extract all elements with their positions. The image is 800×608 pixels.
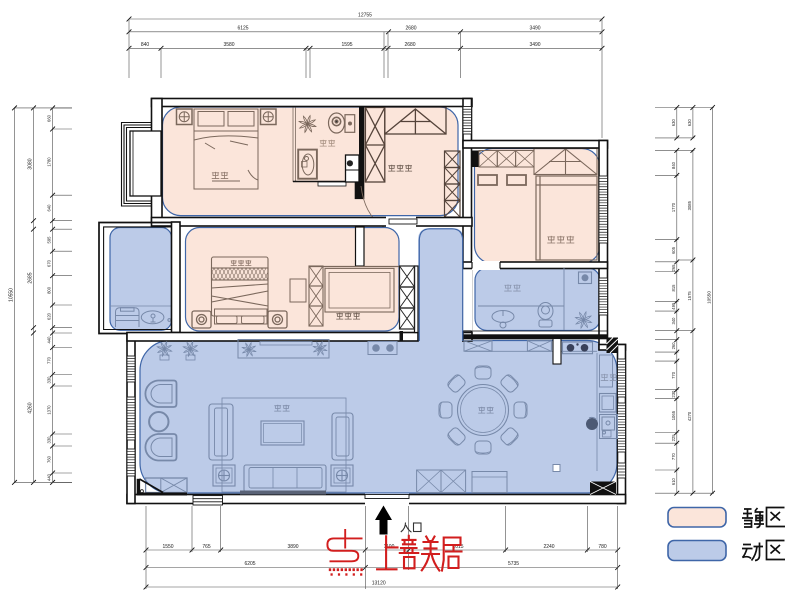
svg-text:5735: 5735 xyxy=(508,561,519,567)
svg-text:2680: 2680 xyxy=(405,25,416,31)
svg-text:640: 640 xyxy=(47,204,52,212)
svg-text:3080: 3080 xyxy=(28,158,34,169)
svg-text:495: 495 xyxy=(671,302,676,310)
svg-text:3490: 3490 xyxy=(529,25,540,31)
svg-text:330: 330 xyxy=(47,436,52,444)
svg-text:330: 330 xyxy=(47,376,52,384)
svg-text:760: 760 xyxy=(47,455,52,463)
svg-text:260: 260 xyxy=(671,342,676,350)
svg-text:770: 770 xyxy=(47,356,52,364)
svg-text:2240: 2240 xyxy=(543,544,554,550)
svg-text:840: 840 xyxy=(141,42,150,48)
svg-text:2680: 2680 xyxy=(404,42,415,48)
svg-text:610: 610 xyxy=(671,477,676,485)
svg-text:6205: 6205 xyxy=(244,561,255,567)
svg-text:1370: 1370 xyxy=(47,405,52,415)
svg-text:2685: 2685 xyxy=(28,272,34,283)
svg-text:6125: 6125 xyxy=(237,25,248,31)
svg-text:800: 800 xyxy=(47,286,52,294)
svg-text:1575: 1575 xyxy=(687,291,692,301)
svg-text:225: 225 xyxy=(671,434,676,442)
svg-text:605: 605 xyxy=(671,246,676,254)
svg-text:595: 595 xyxy=(47,236,52,244)
svg-text:780: 780 xyxy=(598,544,607,550)
svg-text:10550: 10550 xyxy=(9,288,15,302)
svg-text:4270: 4270 xyxy=(687,411,692,421)
svg-text:630: 630 xyxy=(687,119,692,127)
svg-text:230: 230 xyxy=(671,390,676,398)
svg-text:1780: 1780 xyxy=(47,157,52,167)
svg-text:770: 770 xyxy=(671,371,676,379)
svg-text:770: 770 xyxy=(671,452,676,460)
svg-text:620: 620 xyxy=(47,312,52,320)
svg-text:3890: 3890 xyxy=(287,544,298,550)
svg-text:12755: 12755 xyxy=(358,13,372,19)
svg-text:630: 630 xyxy=(671,119,676,127)
svg-text:340: 340 xyxy=(671,317,676,325)
svg-text:670: 670 xyxy=(47,259,52,267)
svg-text:1595: 1595 xyxy=(341,42,352,48)
svg-text:440: 440 xyxy=(47,336,52,344)
svg-text:3085: 3085 xyxy=(687,200,692,210)
svg-text:1065: 1065 xyxy=(671,410,676,420)
svg-text:13120: 13120 xyxy=(372,581,386,587)
svg-text:10550: 10550 xyxy=(707,291,712,304)
svg-text:1550: 1550 xyxy=(162,544,173,550)
svg-text:4260: 4260 xyxy=(28,402,34,413)
svg-text:840: 840 xyxy=(671,161,676,169)
svg-text:660: 660 xyxy=(47,114,52,122)
svg-text:3580: 3580 xyxy=(223,42,234,48)
svg-text:265: 265 xyxy=(671,264,676,272)
svg-text:1770: 1770 xyxy=(671,202,676,212)
svg-text:3490: 3490 xyxy=(529,42,540,48)
svg-text:765: 765 xyxy=(202,544,211,550)
svg-text:815: 815 xyxy=(671,284,676,292)
